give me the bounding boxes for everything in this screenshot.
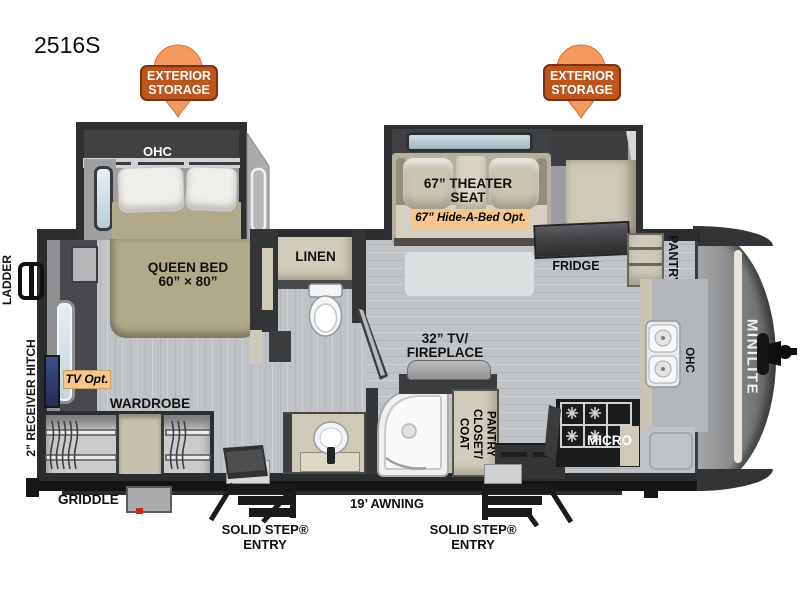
svg-text:EXTERIOR: EXTERIOR (550, 69, 614, 83)
svg-text:STORAGE: STORAGE (148, 83, 210, 97)
svg-text:EXTERIOR: EXTERIOR (147, 69, 211, 83)
svg-text:STORAGE: STORAGE (551, 83, 613, 97)
